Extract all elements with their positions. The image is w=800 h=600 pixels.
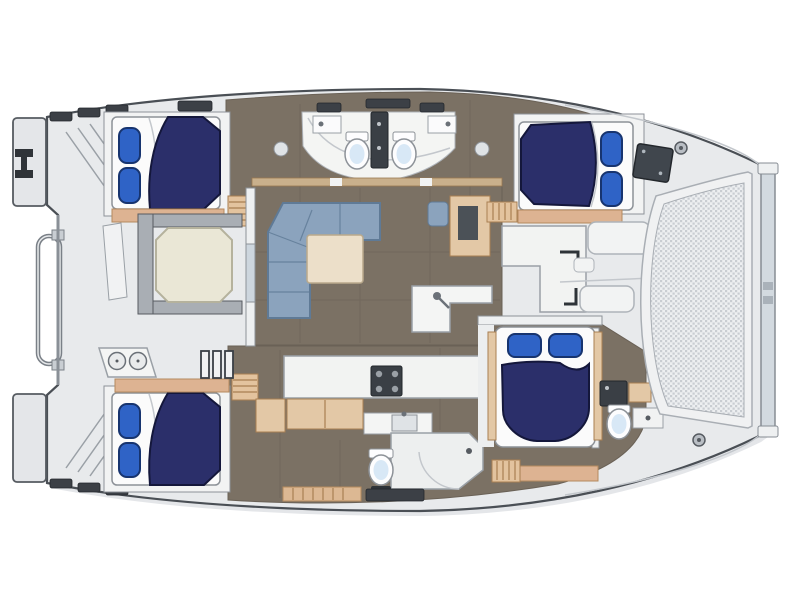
sink bbox=[392, 415, 417, 431]
pillow bbox=[601, 132, 622, 166]
cockpit-door bbox=[246, 244, 255, 302]
floorplan-canvas bbox=[0, 0, 800, 600]
foredeck-locker bbox=[574, 258, 594, 272]
stern-swim-platform-top bbox=[13, 118, 46, 206]
duvet bbox=[521, 122, 596, 206]
floorboards bbox=[283, 487, 424, 501]
vent-grates bbox=[201, 351, 233, 378]
pillow bbox=[601, 172, 622, 206]
toilet-head-aft-top bbox=[345, 132, 369, 169]
vanity-sink-left bbox=[313, 116, 341, 133]
portlight-left bbox=[274, 142, 288, 156]
shower-room bbox=[391, 433, 483, 489]
portlight-right bbox=[475, 142, 489, 156]
boat-floorplan-svg bbox=[0, 0, 800, 600]
shower-box bbox=[600, 381, 627, 406]
anchor-hatch bbox=[633, 143, 674, 182]
grill-module bbox=[99, 348, 156, 377]
toilet-forward bbox=[607, 405, 631, 439]
toilet-head-fwd-top bbox=[392, 132, 416, 169]
trampoline-mesh bbox=[651, 183, 744, 417]
pillow bbox=[549, 334, 582, 357]
shower-column bbox=[371, 112, 388, 168]
vanity-sink-right bbox=[428, 116, 456, 133]
pillow bbox=[119, 128, 140, 163]
duvet bbox=[149, 393, 220, 485]
stove bbox=[371, 366, 402, 396]
coffee-table bbox=[307, 235, 363, 283]
shower-drain bbox=[466, 448, 472, 454]
nav-seat bbox=[428, 202, 448, 226]
companionway-steps-forward bbox=[492, 460, 520, 482]
cockpit-table bbox=[156, 228, 232, 302]
fwd-cabin-wall-top bbox=[478, 316, 602, 325]
stern-swim-platform-bottom bbox=[13, 394, 46, 482]
duvet bbox=[149, 117, 220, 209]
head-seat bbox=[629, 383, 651, 402]
pillow bbox=[119, 168, 140, 203]
galley-cabinet-small bbox=[256, 399, 285, 432]
window-gap bbox=[330, 178, 342, 186]
shelf bbox=[115, 379, 229, 392]
duvet bbox=[502, 362, 589, 441]
pillow bbox=[508, 334, 541, 357]
pillow bbox=[119, 404, 140, 438]
bow-crossbeam bbox=[758, 163, 778, 437]
shelf bbox=[518, 210, 622, 223]
bed-rail bbox=[488, 332, 496, 440]
cockpit-bench-top bbox=[138, 214, 242, 227]
trampoline bbox=[641, 172, 752, 428]
companionway-steps-fwd-top bbox=[487, 202, 517, 222]
faucet bbox=[402, 412, 407, 417]
cockpit-bench-left bbox=[138, 214, 153, 314]
companionway-steps-bottom bbox=[232, 374, 258, 400]
davit-frame bbox=[38, 215, 64, 385]
pillow bbox=[119, 443, 140, 477]
salon-front-beam bbox=[252, 178, 502, 186]
salon-aft-wall bbox=[246, 188, 255, 346]
foot-shelf bbox=[520, 466, 598, 481]
foredeck-seat bbox=[588, 222, 650, 254]
foredeck-seat bbox=[580, 286, 634, 312]
window-gap bbox=[420, 178, 432, 186]
